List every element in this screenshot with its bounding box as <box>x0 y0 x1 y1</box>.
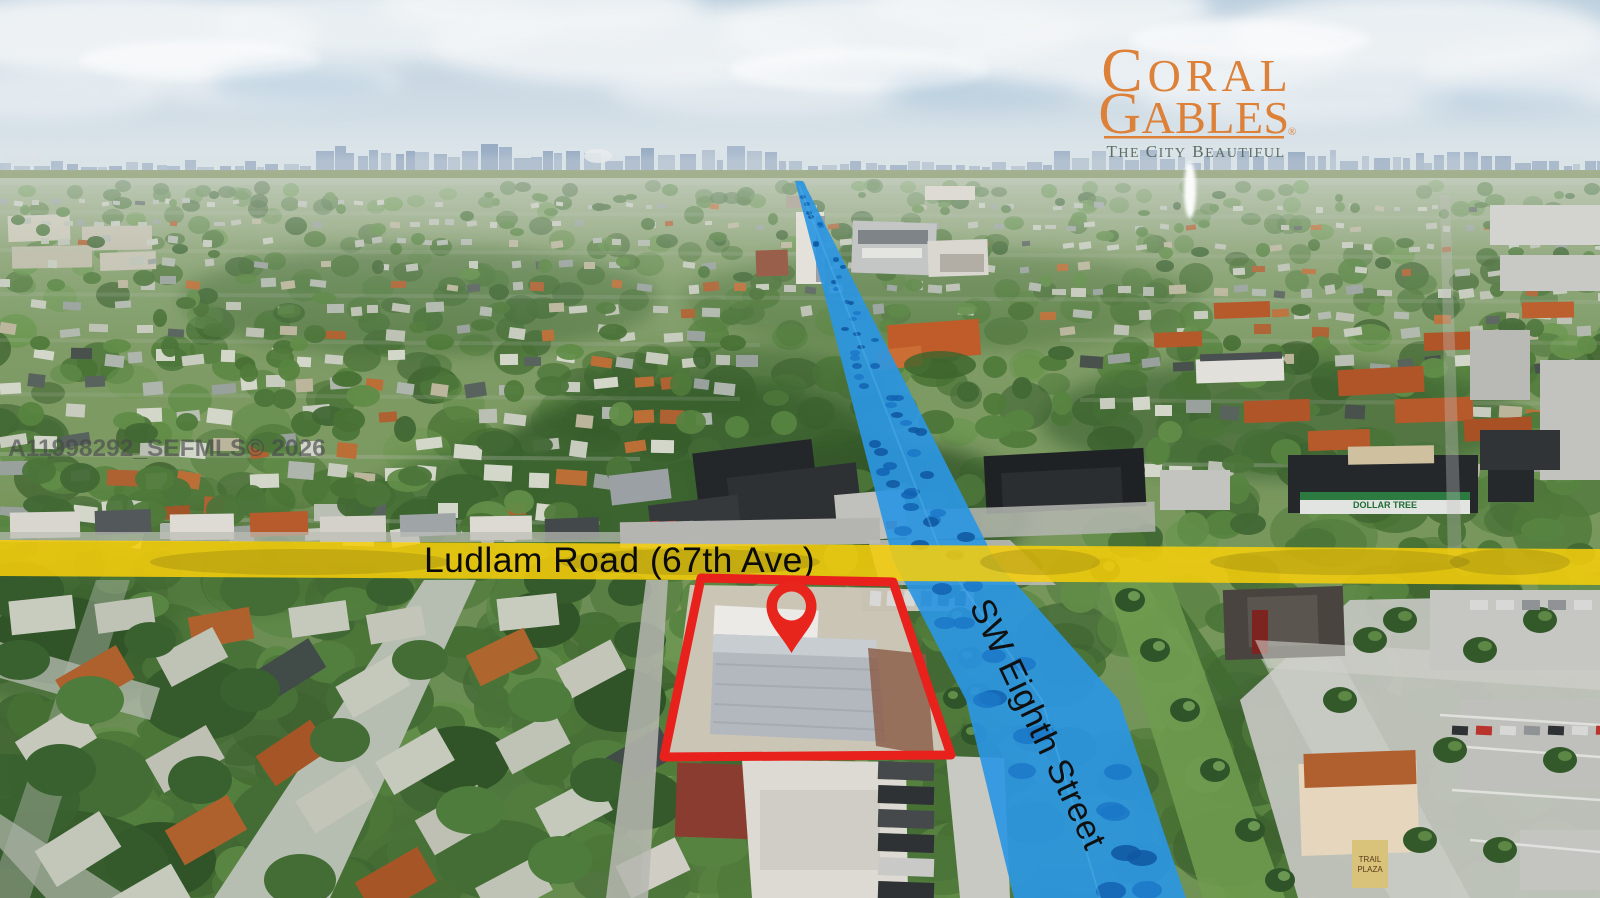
svg-text:PLAZA: PLAZA <box>1357 865 1383 874</box>
svg-text:DOLLAR TREE: DOLLAR TREE <box>1353 500 1417 510</box>
svg-text:TRAIL: TRAIL <box>1359 855 1382 864</box>
svg-text:A11998292_SEFMLS© 2026: A11998292_SEFMLS© 2026 <box>8 435 326 462</box>
svg-text:Ludlam Road (67th Ave): Ludlam Road (67th Ave) <box>424 540 815 580</box>
svg-text:®: ® <box>1288 126 1296 138</box>
